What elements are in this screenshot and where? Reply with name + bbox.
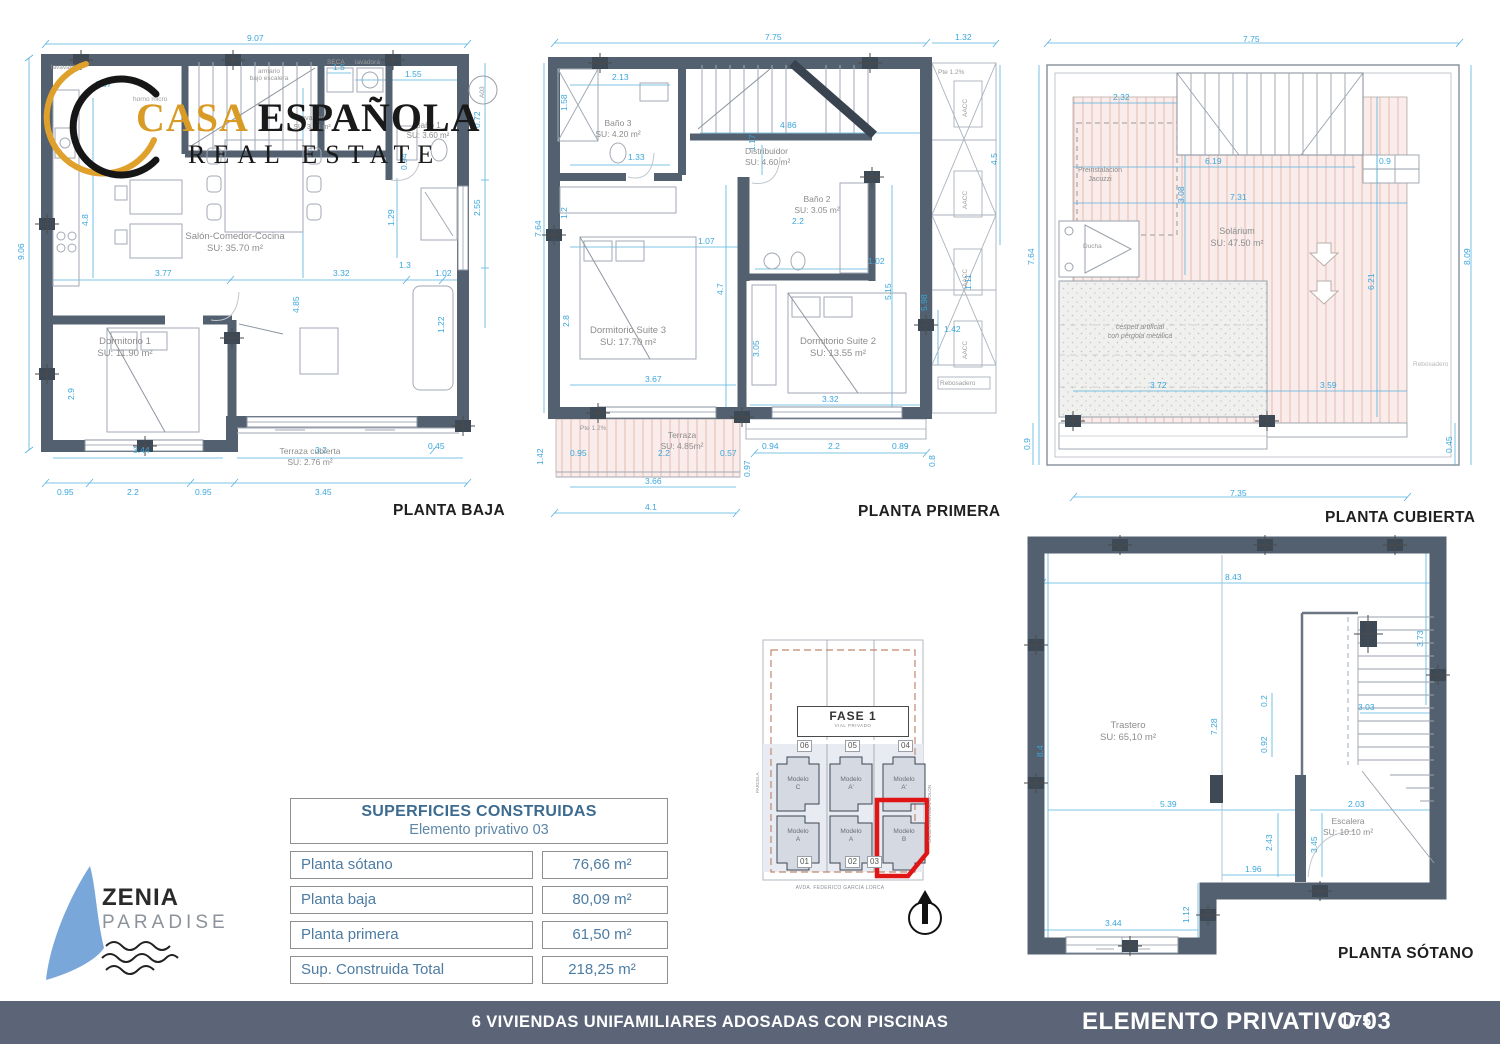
- street-label-calle: CALLE CRISTÓBAL COLÓN: [927, 785, 932, 843]
- label-aacc: AACC: [962, 269, 969, 287]
- label-rebosadero: Rebosadero: [940, 380, 975, 387]
- dim-label: 2.2: [127, 488, 139, 497]
- dim-label: 0.8: [928, 455, 937, 467]
- dim-label: 0.97: [743, 460, 752, 477]
- room-label-dormitorio1: Dormitorio 1 SU: 11.90 m²: [65, 336, 185, 361]
- areas-table-subtitle: Elemento privativo 03: [291, 822, 667, 838]
- dim-label: 4.85: [292, 296, 301, 313]
- room-label-suite2: Dormitorio Suite 2 SU: 13.55 m²: [783, 336, 893, 361]
- dim-label: 1.2: [560, 207, 569, 219]
- label-aacc: AACC: [962, 341, 969, 359]
- dim-label: 3.66: [645, 477, 662, 486]
- room-label-solarium: Solárium SU: 47.50 m²: [1192, 226, 1282, 249]
- plot-number: 03: [867, 856, 882, 868]
- floorplan-planta-cubierta: 7.75 2.32 6.19 7.31 3.08 0.9 7.64 6.21 3…: [1025, 25, 1490, 528]
- dim-label: 1.58: [560, 94, 569, 111]
- dim-label: 1.02: [868, 257, 885, 266]
- site-plan: FASE 1 VIAL PRIVADO 06 05 04 01 02 03 Mo…: [735, 628, 955, 943]
- dim-label: 3.08: [1177, 186, 1186, 203]
- dim-label: 8.43: [1225, 573, 1242, 582]
- dim-label: 2.32: [1113, 93, 1130, 102]
- dim-label: 0.95: [57, 488, 74, 497]
- model-label: ModeloB: [882, 828, 926, 844]
- room-label-jacuzzi: Preinstalación Jacuzzi: [1060, 166, 1140, 184]
- dim-label: 5.39: [1160, 800, 1177, 809]
- dim-label: 4.5: [990, 153, 999, 165]
- dim-label: 3.32: [822, 395, 839, 404]
- model-label: ModeloA: [829, 828, 873, 844]
- dim-label: 1.33: [628, 153, 645, 162]
- dim-label: 4.1: [645, 503, 657, 512]
- dim-label: 4.7: [716, 283, 725, 295]
- planta-cubierta-drawing: [1025, 25, 1490, 528]
- areas-table-title: SUPERFICIES CONSTRUIDAS: [291, 803, 667, 821]
- room-label-suite3: Dormitorio Suite 3 SU: 17.70 m²: [573, 325, 683, 350]
- room-label-ducha: Ducha: [1083, 243, 1102, 250]
- floorplan-planta-sotano: 8.43 3.73 8.4 7.28 0.2 0.92 3.03 5.39 2.…: [1010, 525, 1490, 975]
- dim-label: 0.57: [720, 449, 737, 458]
- dim-label: 3.45: [315, 488, 332, 497]
- dim-label: 7.75: [1243, 35, 1260, 44]
- north-arrow-icon: [909, 890, 941, 934]
- dim-label: 3.59: [1320, 381, 1337, 390]
- plan-title-sotano: PLANTA SÓTANO: [1338, 945, 1474, 963]
- label-pte: Pte 1.2%: [938, 69, 964, 76]
- footer-page-number: 1/75: [1340, 1013, 1371, 1031]
- room-label-trastero: Trastero SU: 65,10 m²: [1073, 720, 1183, 745]
- label-aacc: AACC: [962, 191, 969, 209]
- casa-espanola-tagline: REAL ESTATE: [188, 140, 441, 170]
- areas-table: SUPERFICIES CONSTRUIDAS Elemento privati…: [290, 798, 668, 984]
- dim-label: 3.05: [752, 340, 761, 357]
- dim-label: 2.9: [67, 388, 76, 400]
- dim-label: 5.15: [884, 283, 893, 300]
- dim-label: 0.95: [570, 449, 587, 458]
- dim-label: 0.94: [762, 442, 779, 451]
- plan-sheet: { "logo_casa": { "word_gold": "CASA", "w…: [0, 0, 1500, 1060]
- table-row: Sup. Construida Total 218,25 m²: [290, 956, 668, 984]
- model-label: ModeloC: [776, 776, 820, 792]
- casa-espanola-logo: CASA ESPAÑOLA REAL ESTATE: [28, 52, 438, 187]
- dim-label: 6.19: [1205, 157, 1222, 166]
- plot-number: 05: [845, 740, 860, 752]
- dim-label: 1.42: [536, 448, 545, 465]
- plot-number: 02: [845, 856, 860, 868]
- casa-espanola-wordmark: CASA ESPAÑOLA: [136, 94, 481, 141]
- dim-label: 1.42: [944, 325, 961, 334]
- model-label: ModeloA': [882, 776, 926, 792]
- dim-label: 1.12: [1182, 906, 1191, 923]
- label-rebosadero: Rebosadero: [1413, 361, 1448, 368]
- dim-label: 6.21: [1367, 273, 1376, 290]
- dim-label: 0.92: [1260, 736, 1269, 753]
- dim-label: 4.86: [780, 121, 797, 130]
- dim-label: 2.13: [612, 73, 629, 82]
- model-label: ModeloA': [829, 776, 873, 792]
- room-label-cesped: césped artificial con pérgola metálica: [1080, 323, 1200, 341]
- room-label-escalera: Escalera SU: 10.10 m²: [1303, 816, 1393, 838]
- dim-label: 9.07: [247, 34, 264, 43]
- zenia-name: ZENIA: [102, 884, 179, 912]
- dim-label: 4.8: [81, 214, 90, 226]
- dim-label: 5.98: [920, 294, 929, 311]
- dim-label: 2.03: [1348, 800, 1365, 809]
- dim-label: 7.35: [1230, 489, 1247, 498]
- dim-label: 3.72: [1150, 381, 1167, 390]
- dim-label: 0.45: [1445, 436, 1454, 453]
- dim-label: 1.3: [399, 261, 411, 270]
- dim-label: 3.67: [645, 375, 662, 384]
- dim-label: 2.43: [1265, 834, 1274, 851]
- label-aacc: AACC: [962, 99, 969, 117]
- dim-label: 3.44: [1105, 919, 1122, 928]
- plot-number: 04: [898, 740, 913, 752]
- plot-number: 06: [797, 740, 812, 752]
- table-row: Planta primera 61,50 m²: [290, 921, 668, 949]
- street-label-parcela: PARCELA: [755, 772, 760, 793]
- dim-label: 2.55: [473, 199, 482, 216]
- dim-label: 7.28: [1210, 718, 1219, 735]
- dim-label: 7.31: [1230, 193, 1247, 202]
- dim-label: 9.06: [17, 243, 26, 260]
- plan-title-primera: PLANTA PRIMERA: [858, 503, 1001, 521]
- dim-label: 1.29: [387, 209, 396, 226]
- room-label-bano2: Baño 2 SU: 3.05 m²: [777, 194, 857, 216]
- dim-label: 1.07: [698, 237, 715, 246]
- dim-label: 8.09: [1463, 248, 1472, 265]
- dim-label: 3.45: [1310, 836, 1319, 853]
- dim-label: 1.96: [1245, 865, 1262, 874]
- dim-label: 7.64: [1027, 248, 1036, 265]
- room-label-distribuidor: Distribuidor SU: 4.60 m²: [745, 146, 835, 168]
- dim-label: 3.44: [133, 446, 150, 455]
- room-label-bano3: Baño 3 SU: 4.20 m²: [573, 118, 663, 140]
- fase-box: FASE 1 VIAL PRIVADO: [797, 706, 909, 737]
- room-label-terraza-cubierta: Terraza cubierta SU: 2.76 m²: [230, 446, 390, 468]
- label-pte: Pte 1.2%: [580, 425, 606, 432]
- dim-label: 0.9: [1023, 438, 1032, 450]
- dim-label: 7.64: [534, 220, 543, 237]
- dim-label: 0.45: [428, 442, 445, 451]
- floorplan-planta-primera: 7.75 1.32 7.64 2.13 1.58 1.33 1.2 2.8 4.…: [540, 25, 1015, 523]
- zenia-paradise-logo: ZENIA PARADISE: [28, 858, 263, 1000]
- table-row: Planta sótano 76,66 m²: [290, 851, 668, 879]
- dim-label: 3.32: [333, 269, 350, 278]
- areas-table-header: SUPERFICIES CONSTRUIDAS Elemento privati…: [290, 798, 668, 844]
- dim-label: 1.32: [955, 33, 972, 42]
- dim-label: 2.8: [562, 315, 571, 327]
- zenia-sub: PARADISE: [102, 912, 229, 934]
- dim-label: 3.77: [155, 269, 172, 278]
- dim-label: 1.22: [437, 316, 446, 333]
- table-row: Planta baja 80,09 m²: [290, 886, 668, 914]
- street-label-avda: AVDA. FEDERICO GARCÍA LORCA: [765, 886, 915, 892]
- footer-project-title: 6 VIVIENDAS UNIFAMILIARES ADOSADAS CON P…: [430, 1013, 990, 1032]
- dim-label: 8.4: [1036, 745, 1045, 757]
- dim-label: 0.89: [892, 442, 909, 451]
- dim-label: 2.2: [828, 442, 840, 451]
- plot-number: 01: [797, 856, 812, 868]
- model-label: ModeloA: [776, 828, 820, 844]
- dim-label: 7.75: [765, 33, 782, 42]
- dim-label: 0.9: [1379, 157, 1391, 166]
- plan-title-baja: PLANTA BAJA: [393, 502, 505, 520]
- room-label-terraza: Terraza SU: 4.85m²: [642, 430, 722, 452]
- dim-label: 2.2: [792, 217, 804, 226]
- dim-label: 1.02: [435, 269, 452, 278]
- dim-label: 0.95: [195, 488, 212, 497]
- dim-label: 3.73: [1416, 630, 1425, 647]
- planta-sotano-drawing: [1010, 525, 1490, 975]
- dim-label: 0.2: [1260, 695, 1269, 707]
- room-label-salon: Salón-Comedor-Cocina SU: 35.70 m²: [155, 231, 315, 256]
- dim-label: 3.03: [1358, 703, 1375, 712]
